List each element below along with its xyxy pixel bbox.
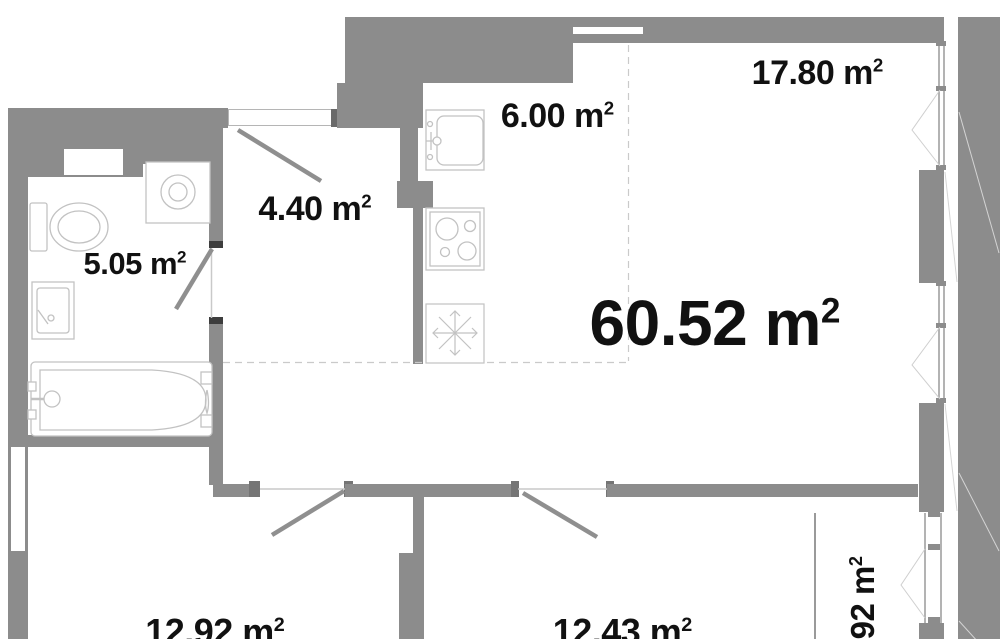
area-label-bathroom: 5.05 m2 (55, 247, 215, 281)
bathroom-sink-icon (32, 282, 74, 339)
area-value: 12.92 m (145, 611, 274, 639)
window-icon (925, 43, 944, 623)
area-label-room-center: 12.43 m2 (500, 612, 745, 639)
fridge-icon (426, 304, 484, 363)
area-label-living-room: 17.80 m2 (725, 55, 910, 92)
glazing-diagonal-mark (945, 112, 999, 639)
area-value: 12.43 m (553, 611, 682, 639)
area-label-hallway: 4.40 m2 (235, 191, 395, 228)
window-opening-mark (901, 90, 940, 618)
area-superscript: 2 (681, 614, 692, 636)
area-superscript: 2 (361, 191, 371, 212)
floor-plan: 60.52 m2 17.80 m2 6.00 m2 4.40 m2 5.05 m… (0, 0, 1000, 639)
area-label-kitchen: 6.00 m2 (470, 98, 645, 135)
area-value: 5.05 m (84, 246, 178, 281)
area-label-balcony: .92 m2 (845, 556, 881, 639)
area-superscript: 2 (177, 248, 186, 267)
area-value: 17.80 m (752, 54, 873, 92)
area-superscript: 2 (274, 614, 285, 636)
toilet-icon (30, 203, 108, 251)
area-superscript: 2 (821, 292, 841, 331)
area-label-room-left: 12.92 m2 (95, 612, 335, 639)
area-value: 60.52 m (590, 287, 821, 359)
area-superscript: 2 (873, 55, 883, 76)
area-superscript: 2 (846, 556, 866, 566)
area-superscript: 2 (604, 98, 614, 119)
area-label-total: 60.52 m2 (565, 288, 865, 358)
area-value: 4.40 m (258, 190, 361, 228)
area-value: 6.00 m (501, 97, 604, 135)
area-value: .92 m (844, 566, 881, 639)
bathtub-icon (28, 362, 212, 436)
washing-machine-icon (146, 162, 210, 223)
door-threshold-line (212, 248, 608, 489)
stove-icon (426, 208, 484, 270)
